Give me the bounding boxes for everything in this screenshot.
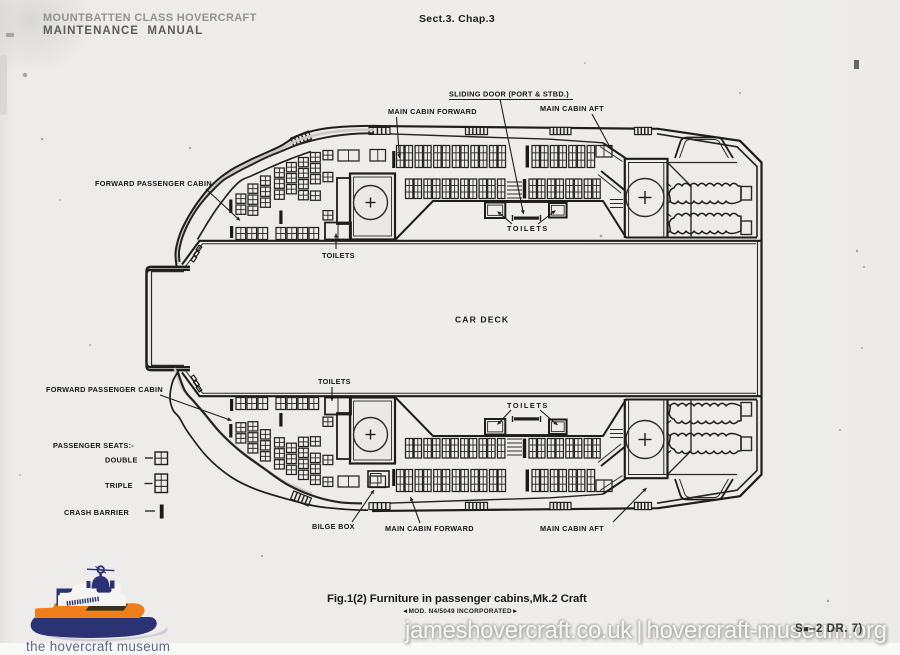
svg-text:CRASH BARRIER: CRASH BARRIER xyxy=(64,508,130,517)
svg-text:FORWARD PASSENGER CABIN: FORWARD PASSENGER CABIN xyxy=(46,385,163,394)
svg-text:TOILETS: TOILETS xyxy=(322,251,355,260)
svg-text:TOILETS: TOILETS xyxy=(507,401,549,410)
svg-text:MAIN CABIN AFT: MAIN CABIN AFT xyxy=(540,104,604,113)
svg-text:MAIN CABIN FORWARD: MAIN CABIN FORWARD xyxy=(385,524,474,533)
svg-text:MAIN CABIN AFT: MAIN CABIN AFT xyxy=(540,524,604,533)
svg-text:CAR DECK: CAR DECK xyxy=(455,315,509,325)
svg-text:DOUBLE: DOUBLE xyxy=(105,456,138,465)
svg-text:MAIN CABIN FORWARD: MAIN CABIN FORWARD xyxy=(388,107,477,116)
svg-text:TRIPLE: TRIPLE xyxy=(105,481,133,490)
svg-text:SLIDING DOOR (PORT & STBD.): SLIDING DOOR (PORT & STBD.) xyxy=(449,90,569,99)
svg-text:PASSENGER SEATS:-: PASSENGER SEATS:- xyxy=(53,441,134,450)
svg-text:TOILETS: TOILETS xyxy=(318,377,351,386)
svg-text:BILGE BOX: BILGE BOX xyxy=(312,522,355,531)
svg-text:FORWARD PASSENGER CABIN: FORWARD PASSENGER CABIN xyxy=(95,179,212,188)
svg-text:TOILETS: TOILETS xyxy=(507,224,549,233)
